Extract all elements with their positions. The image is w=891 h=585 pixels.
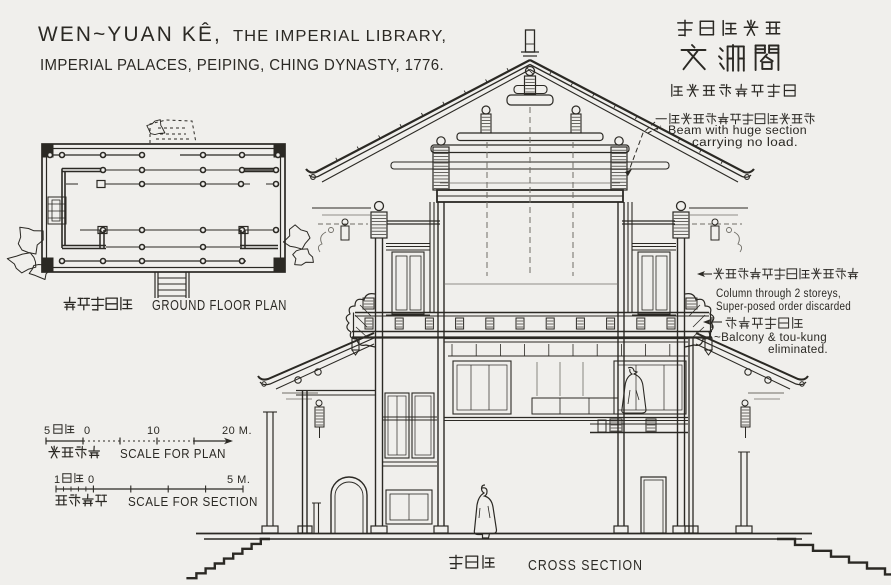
svg-text:20 M.: 20 M. xyxy=(222,425,252,437)
svg-text:5: 5 xyxy=(44,425,50,437)
svg-text:GROUND FLOOR PLAN: GROUND FLOOR PLAN xyxy=(152,298,287,314)
svg-text:eliminated.: eliminated. xyxy=(768,344,828,356)
svg-text:SCALE FOR PLAN: SCALE FOR PLAN xyxy=(120,446,226,461)
svg-text:CROSS SECTION: CROSS SECTION xyxy=(528,558,643,574)
svg-text:carrying no load.: carrying no load. xyxy=(692,137,798,149)
svg-text:1: 1 xyxy=(54,474,60,486)
svg-text:10: 10 xyxy=(147,425,160,437)
svg-text:~Balcony & tou-kung: ~Balcony & tou-kung xyxy=(714,332,827,344)
svg-text:0: 0 xyxy=(88,474,94,486)
svg-text:WEN~YUAN KÊ,: WEN~YUAN KÊ, xyxy=(38,23,222,46)
svg-text:Column through 2 storeys,: Column through 2 storeys, xyxy=(716,288,841,300)
svg-text:0: 0 xyxy=(84,425,90,437)
svg-text:IMPERIAL PALACES, PEIPING, CH: IMPERIAL PALACES, PEIPING, CHING DYNASTY… xyxy=(40,57,444,74)
svg-text:Beam with huge section: Beam with huge section xyxy=(668,125,807,137)
svg-text:THE IMPERIAL LIBRARY,: THE IMPERIAL LIBRARY, xyxy=(233,28,447,45)
svg-text:SCALE FOR SECTION: SCALE FOR SECTION xyxy=(128,494,258,509)
svg-text:5 M.: 5 M. xyxy=(227,474,250,486)
svg-text:Super-posed order discarded: Super-posed order discarded xyxy=(716,301,851,313)
